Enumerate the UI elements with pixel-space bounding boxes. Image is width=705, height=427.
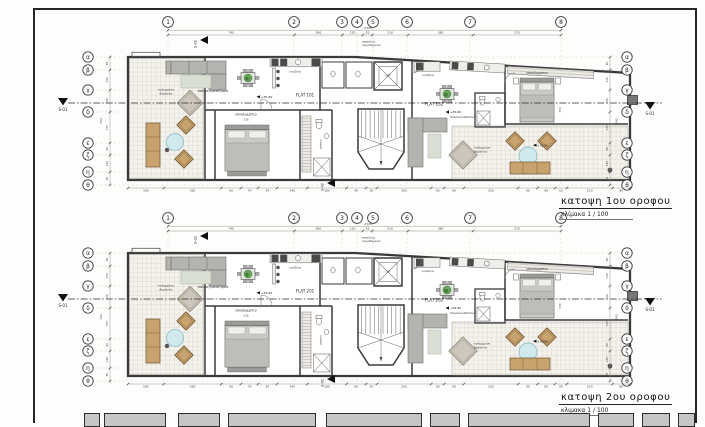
- svg-text:50: 50: [370, 189, 374, 193]
- first-floor-title-block: κατοψη 1ου οροφου κλίμακα 1 / 100: [559, 196, 697, 220]
- svg-text:κουζίνα: κουζίνα: [289, 70, 301, 74]
- svg-text:140: 140: [289, 189, 295, 193]
- svg-text:S-01: S-01: [58, 303, 68, 308]
- svg-text:ασφαλείας: ασφαλείας: [362, 236, 376, 240]
- svg-text:60: 60: [436, 385, 440, 389]
- floor-plan-svg: S-01S-01S-02S-0212345678ααββγγδδεεζζηηθθ…: [50, 12, 690, 212]
- s01-triangle-right: [645, 298, 655, 306]
- svg-text:δ: δ: [625, 306, 629, 312]
- svg-text:βεράντα: βεράντα: [474, 346, 487, 350]
- svg-text:σαλόνι/καθιστικό: σαλόνι/καθιστικό: [450, 311, 476, 315]
- svg-text:μπάνιο: μπάνιο: [319, 335, 323, 345]
- svg-text:1: 1: [166, 215, 170, 222]
- svg-text:1: 1: [166, 19, 170, 26]
- svg-text:FLAT 102: FLAT 102: [425, 102, 444, 107]
- svg-text:6: 6: [405, 19, 409, 26]
- svg-text:265: 265: [190, 385, 196, 389]
- svg-text:υπνοδωμάτιο: υπνοδωμάτιο: [526, 71, 547, 75]
- second-floor-title: κατοψη 2ου οροφου: [559, 392, 672, 405]
- closet-left: [302, 312, 311, 368]
- svg-text:380: 380: [438, 31, 444, 35]
- svg-text:α: α: [625, 55, 629, 61]
- first-floor-scale: κλίμακα 1 / 100: [559, 209, 633, 220]
- svg-text:250: 250: [401, 189, 407, 193]
- svg-text:190: 190: [605, 98, 609, 103]
- svg-text:120: 120: [605, 161, 609, 166]
- svg-text:275: 275: [105, 321, 109, 326]
- svg-text:β: β: [86, 68, 90, 74]
- svg-text:ζ: ζ: [625, 349, 628, 355]
- svg-text:326: 326: [243, 118, 249, 122]
- svg-text:140: 140: [289, 385, 295, 389]
- svg-text:γ: γ: [86, 88, 90, 94]
- svg-text:90: 90: [452, 189, 456, 193]
- svg-text:180: 180: [324, 189, 330, 193]
- svg-text:LIFT: LIFT: [385, 270, 391, 274]
- svg-text:8: 8: [559, 19, 563, 26]
- svg-text:165: 165: [143, 189, 149, 193]
- svg-text:90: 90: [605, 343, 609, 347]
- svg-text:κουζίνα: κουζίνα: [289, 266, 301, 270]
- s01-triangle-right: [645, 102, 655, 110]
- svg-text:S-02: S-02: [194, 236, 198, 244]
- svg-text:ε: ε: [86, 141, 89, 147]
- svg-text:κουζίνα: κουζίνα: [422, 73, 434, 77]
- svg-text:90: 90: [105, 343, 109, 347]
- svg-text:ανεμοθώρακας: ανεμοθώρακας: [362, 239, 381, 243]
- svg-text:190: 190: [605, 294, 609, 299]
- svg-text:3: 3: [340, 215, 344, 222]
- svg-text:130: 130: [605, 273, 609, 278]
- svg-text:β: β: [86, 264, 90, 270]
- svg-text:210: 210: [387, 31, 393, 35]
- svg-text:ζ: ζ: [625, 153, 628, 159]
- svg-text:80: 80: [619, 189, 623, 193]
- svg-text:326: 326: [243, 314, 249, 318]
- svg-text:165: 165: [143, 385, 149, 389]
- svg-text:α: α: [86, 55, 90, 61]
- s02-triangle-top: [200, 232, 208, 240]
- svg-text:250: 250: [488, 189, 494, 193]
- svg-text:FLAT 202: FLAT 202: [425, 298, 444, 303]
- svg-text:265: 265: [190, 189, 196, 193]
- svg-text:7: 7: [468, 215, 472, 222]
- svg-text:180: 180: [324, 385, 330, 389]
- svg-text:β: β: [625, 264, 629, 270]
- svg-text:γ: γ: [86, 284, 90, 290]
- s01-triangle-left: [58, 294, 68, 302]
- first-floor-title: κατοψη 1ου οροφου: [559, 196, 672, 209]
- svg-text:742: 742: [99, 314, 103, 320]
- svg-text:LIFT: LIFT: [385, 74, 391, 78]
- svg-text:7: 7: [468, 19, 472, 26]
- first-floor-plan: S-01S-01S-02S-0212345678ααββγγδδεεζζηηθθ…: [50, 12, 690, 212]
- svg-text:3: 3: [340, 19, 344, 26]
- svg-text:80: 80: [544, 385, 548, 389]
- svg-text:190: 190: [105, 294, 109, 299]
- svg-text:γ: γ: [625, 284, 629, 290]
- titleblock-cell: [228, 413, 316, 427]
- svg-text:250: 250: [488, 385, 494, 389]
- svg-text:κουζίνα: κουζίνα: [422, 269, 434, 273]
- svg-text:+39,80: +39,80: [538, 339, 549, 343]
- svg-text:65: 65: [605, 177, 609, 181]
- svg-text:275: 275: [605, 125, 609, 130]
- svg-text:+35,80: +35,80: [450, 110, 461, 114]
- svg-text:85: 85: [105, 62, 109, 66]
- svg-text:55: 55: [366, 227, 370, 231]
- svg-text:βεράντα: βεράντα: [160, 92, 173, 96]
- svg-text:η: η: [86, 170, 90, 176]
- svg-text:87: 87: [266, 385, 270, 389]
- svg-text:740: 740: [228, 31, 234, 35]
- svg-text:η: η: [86, 366, 90, 372]
- svg-text:θ: θ: [86, 379, 90, 385]
- svg-text:742: 742: [615, 118, 619, 124]
- svg-text:θ: θ: [86, 183, 90, 189]
- svg-text:S-01: S-01: [645, 111, 655, 116]
- svg-text:60: 60: [436, 189, 440, 193]
- svg-text:FLAT 101: FLAT 101: [296, 93, 315, 98]
- svg-text:90: 90: [354, 189, 358, 193]
- floor-plan-svg: S-01S-01S-02S-0212345678ααββγγδδεεζζηηθθ…: [50, 208, 690, 408]
- drawing-sheet: S-01S-01S-02S-0212345678ααββγγδδεεζζηηθθ…: [0, 0, 705, 423]
- svg-text:90: 90: [105, 147, 109, 151]
- svg-text:380: 380: [438, 227, 444, 231]
- svg-text:2: 2: [292, 215, 296, 222]
- svg-text:+39,80: +39,80: [261, 291, 272, 295]
- svg-text:65: 65: [605, 373, 609, 377]
- svg-text:ζ: ζ: [86, 349, 89, 355]
- svg-text:υπνοδωμάτιο: υπνοδωμάτιο: [526, 267, 547, 271]
- svg-text:210: 210: [587, 385, 593, 389]
- svg-text:65: 65: [105, 177, 109, 181]
- svg-text:190: 190: [105, 98, 109, 103]
- svg-text:90: 90: [354, 385, 358, 389]
- titleblock-cell: [84, 413, 100, 427]
- svg-text:280: 280: [316, 227, 322, 231]
- titleblock-cell: [178, 413, 220, 427]
- sheet-frame-left: [33, 8, 35, 423]
- svg-text:742: 742: [99, 118, 103, 124]
- svg-text:ανεμοθώρακας: ανεμοθώρακας: [362, 43, 381, 47]
- svg-text:250: 250: [401, 385, 407, 389]
- svg-text:210: 210: [587, 189, 593, 193]
- svg-text:δ: δ: [86, 110, 90, 116]
- sheet-frame-top: [33, 8, 697, 10]
- svg-text:90: 90: [229, 189, 233, 193]
- svg-text:6: 6: [405, 215, 409, 222]
- second-floor-scale: κλιμακα 1 / 100: [559, 405, 633, 416]
- svg-text:ε: ε: [625, 141, 628, 147]
- svg-text:90: 90: [229, 385, 233, 389]
- svg-text:+35,80: +35,80: [538, 143, 549, 147]
- svg-text:βεράντα: βεράντα: [160, 288, 173, 292]
- svg-text:4: 4: [355, 19, 359, 26]
- s02-triangle-top: [200, 36, 208, 44]
- svg-text:α: α: [86, 251, 90, 257]
- s01-triangle-left: [58, 98, 68, 106]
- svg-text:55: 55: [559, 385, 563, 389]
- second-floor-title-block: κατοψη 2ου οροφου κλιμακα 1 / 100: [559, 392, 697, 416]
- svg-text:υπνοδωμάτιο: υπνοδωμάτιο: [235, 309, 256, 313]
- svg-text:120: 120: [350, 227, 356, 231]
- svg-text:μπάνιο: μπάνιο: [319, 139, 323, 149]
- svg-text:σαλόνι/καθιστικό: σαλόνι/καθιστικό: [450, 115, 476, 119]
- svg-text:55: 55: [366, 31, 370, 35]
- svg-text:55: 55: [559, 189, 563, 193]
- svg-text:σαλόνι/τραπεζαρία: σαλόνι/τραπεζαρία: [198, 89, 229, 93]
- svg-text:330: 330: [558, 107, 562, 113]
- svg-text:50: 50: [370, 385, 374, 389]
- svg-text:4: 4: [355, 215, 359, 222]
- svg-text:85: 85: [605, 258, 609, 262]
- svg-text:ε: ε: [625, 337, 628, 343]
- svg-text:280: 280: [316, 31, 322, 35]
- svg-text:120: 120: [105, 357, 109, 362]
- svg-text:210: 210: [387, 227, 393, 231]
- svg-text:2325: 2325: [364, 222, 372, 226]
- svg-text:+39,80: +39,80: [450, 306, 461, 310]
- svg-text:80: 80: [544, 189, 548, 193]
- svg-text:275: 275: [105, 125, 109, 130]
- titleblock-cell: [430, 413, 460, 427]
- svg-text:90: 90: [452, 385, 456, 389]
- svg-text:2: 2: [292, 19, 296, 26]
- titleblock-cell: [104, 413, 166, 427]
- svg-text:79: 79: [248, 189, 252, 193]
- svg-text:275: 275: [605, 321, 609, 326]
- svg-text:ασφαλείας: ασφαλείας: [362, 40, 376, 44]
- svg-text:+35,80: +35,80: [261, 95, 272, 99]
- svg-text:δ: δ: [86, 306, 90, 312]
- titleblock-cell: [326, 413, 422, 427]
- svg-text:79: 79: [248, 385, 252, 389]
- svg-text:90: 90: [526, 189, 530, 193]
- svg-text:90: 90: [605, 147, 609, 151]
- svg-text:85: 85: [105, 258, 109, 262]
- svg-text:85: 85: [605, 62, 609, 66]
- svg-text:330: 330: [558, 303, 562, 309]
- svg-text:87: 87: [266, 189, 270, 193]
- svg-text:130: 130: [105, 77, 109, 82]
- svg-text:α: α: [625, 251, 629, 257]
- svg-text:S-01: S-01: [58, 107, 68, 112]
- svg-text:2325: 2325: [364, 26, 372, 30]
- svg-text:η: η: [625, 170, 629, 176]
- closet-left: [302, 116, 311, 172]
- svg-text:740: 740: [228, 227, 234, 231]
- svg-text:120: 120: [105, 161, 109, 166]
- svg-text:515: 515: [514, 227, 520, 231]
- svg-text:515: 515: [514, 31, 520, 35]
- svg-text:δ: δ: [625, 110, 629, 116]
- second-floor-plan: S-01S-01S-02S-0212345678ααββγγδδεεζζηηθθ…: [50, 208, 690, 408]
- svg-text:130: 130: [605, 77, 609, 82]
- svg-text:65: 65: [105, 373, 109, 377]
- svg-text:β: β: [625, 68, 629, 74]
- svg-text:ζ: ζ: [86, 153, 89, 159]
- svg-text:βεράντα: βεράντα: [474, 150, 487, 154]
- svg-text:S-01: S-01: [645, 307, 655, 312]
- svg-text:η: η: [625, 366, 629, 372]
- svg-text:742: 742: [615, 314, 619, 320]
- svg-text:80: 80: [619, 385, 623, 389]
- svg-text:υπνοδωμάτιο: υπνοδωμάτιο: [235, 113, 256, 117]
- svg-text:γ: γ: [625, 88, 629, 94]
- svg-text:120: 120: [350, 31, 356, 35]
- svg-text:120: 120: [605, 357, 609, 362]
- svg-text:σαλόνι/τραπεζαρία: σαλόνι/τραπεζαρία: [198, 285, 229, 289]
- svg-text:FLAT 201: FLAT 201: [296, 289, 315, 294]
- svg-text:S-02: S-02: [194, 40, 198, 48]
- svg-text:ε: ε: [86, 337, 89, 343]
- svg-text:130: 130: [105, 273, 109, 278]
- svg-text:90: 90: [526, 385, 530, 389]
